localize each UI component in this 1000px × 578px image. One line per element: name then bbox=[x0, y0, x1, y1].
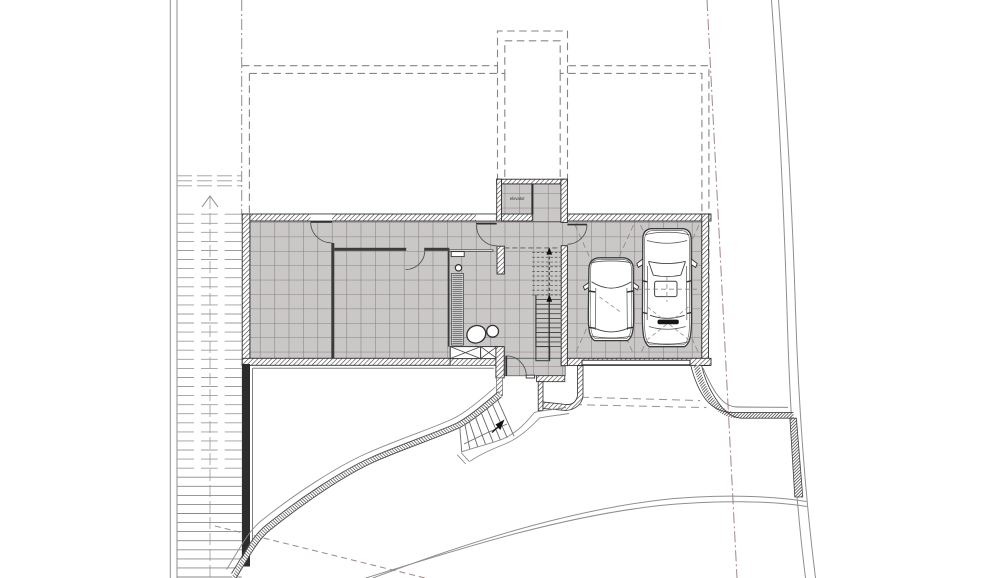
svg-text:elevator: elevator bbox=[510, 196, 526, 201]
